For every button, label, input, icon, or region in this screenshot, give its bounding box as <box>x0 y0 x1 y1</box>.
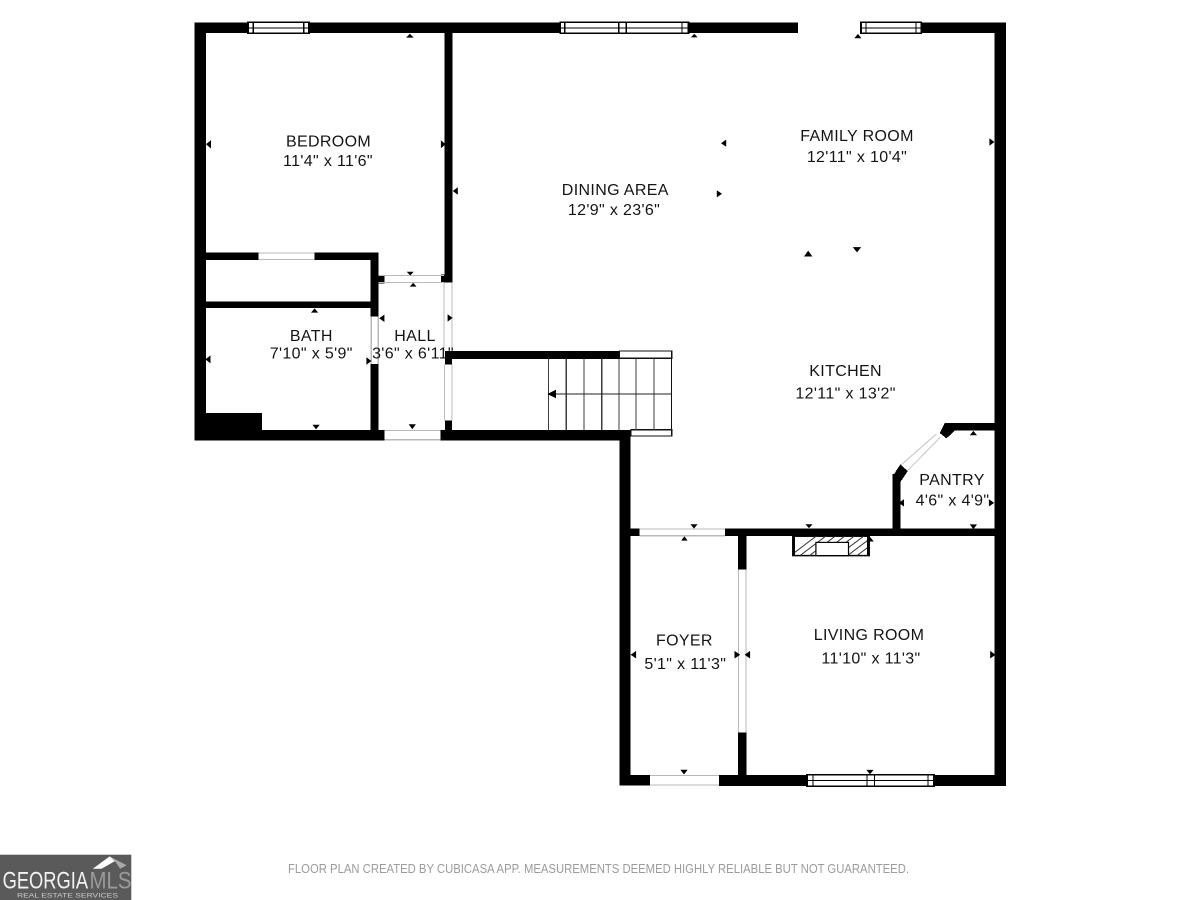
svg-text:11'10" x 11'3": 11'10" x 11'3" <box>821 650 920 667</box>
svg-text:3'6" x 6'11": 3'6" x 6'11" <box>372 346 454 363</box>
svg-text:12'11" x 13'2": 12'11" x 13'2" <box>795 386 895 403</box>
svg-text:MLS: MLS <box>90 868 132 895</box>
svg-text:LIVING ROOM: LIVING ROOM <box>814 627 925 644</box>
svg-text:REAL ESTATE SERVICES: REAL ESTATE SERVICES <box>17 892 118 899</box>
svg-text:GEORGIA: GEORGIA <box>3 868 89 895</box>
svg-text:FOYER: FOYER <box>656 633 713 650</box>
svg-text:BATH: BATH <box>290 328 333 345</box>
svg-text:HALL: HALL <box>394 328 435 345</box>
svg-text:FAMILY ROOM: FAMILY ROOM <box>800 128 914 145</box>
svg-text:BEDROOM: BEDROOM <box>286 134 371 151</box>
svg-text:12'9" x 23'6": 12'9" x 23'6" <box>568 202 660 219</box>
svg-text:KITCHEN: KITCHEN <box>809 363 882 380</box>
svg-text:11'4" x 11'6": 11'4" x 11'6" <box>283 153 373 170</box>
svg-text:PANTRY: PANTRY <box>919 472 985 489</box>
svg-text:DINING AREA: DINING AREA <box>562 182 669 199</box>
svg-text:5'1" x 11'3": 5'1" x 11'3" <box>644 656 726 673</box>
svg-text:4'6" x 4'9": 4'6" x 4'9" <box>916 493 990 510</box>
svg-text:7'10" x 5'9": 7'10" x 5'9" <box>270 346 353 363</box>
svg-text:12'11" x 10'4": 12'11" x 10'4" <box>807 149 907 166</box>
svg-text:FLOOR PLAN CREATED BY CUBICASA: FLOOR PLAN CREATED BY CUBICASA APP. MEAS… <box>288 861 909 876</box>
